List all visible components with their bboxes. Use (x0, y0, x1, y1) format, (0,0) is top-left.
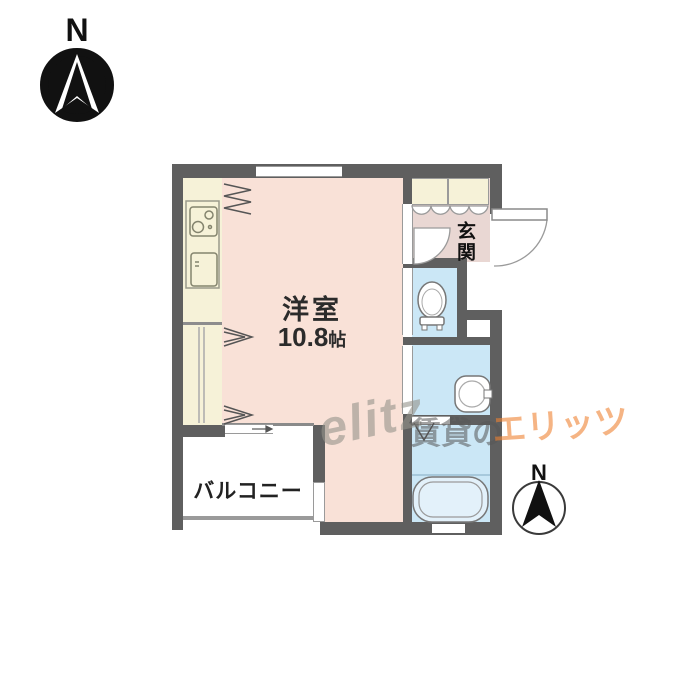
wall-toilet-right (457, 258, 467, 345)
wall-kitchen-bottom (172, 425, 225, 437)
divider-kitchen-closet (183, 322, 222, 325)
wall-notch (467, 310, 502, 320)
entrance-door (492, 209, 547, 266)
size-unit: 帖 (328, 330, 346, 350)
toilet-room-fill (412, 266, 457, 337)
size-value: 10.8 (278, 322, 329, 352)
window-balcony (225, 424, 273, 434)
window-top (256, 166, 342, 177)
balcony-right-rail (313, 482, 325, 522)
kitchen-fill (183, 178, 222, 323)
floor-plan-page: N N 洋室 10.8帖 バルコニー 玄関 elitz 賃貸の エリッツ (0, 0, 700, 700)
washroom-fill (412, 345, 490, 415)
wall-washroom-top (403, 337, 490, 345)
shoe-cabinet-left (411, 178, 448, 205)
closet-fill (183, 325, 222, 425)
wall-left (172, 164, 183, 530)
wall-bottom (320, 522, 502, 535)
watermark-orange-text: エリッツ (490, 393, 629, 451)
shoe-cabinet-right (448, 178, 489, 205)
partition-entrance (402, 204, 413, 264)
balcony-rail-bottom (183, 516, 313, 520)
bath-bottom-vent (432, 524, 465, 533)
north-label-top: N (55, 12, 99, 49)
balcony-label: バルコニー (188, 475, 308, 505)
wall-interior-upper (403, 178, 412, 206)
partition-toilet (402, 268, 413, 335)
compass-north-icon-small (513, 480, 565, 534)
main-room-size: 10.8帖 (252, 322, 372, 353)
watermark-gray-text: 賃貸の (410, 408, 503, 453)
north-label-bottom: N (517, 460, 561, 486)
compass-north-icon (44, 52, 110, 118)
entrance-label: 玄関 (455, 221, 474, 263)
wall-right-upper (490, 164, 502, 214)
